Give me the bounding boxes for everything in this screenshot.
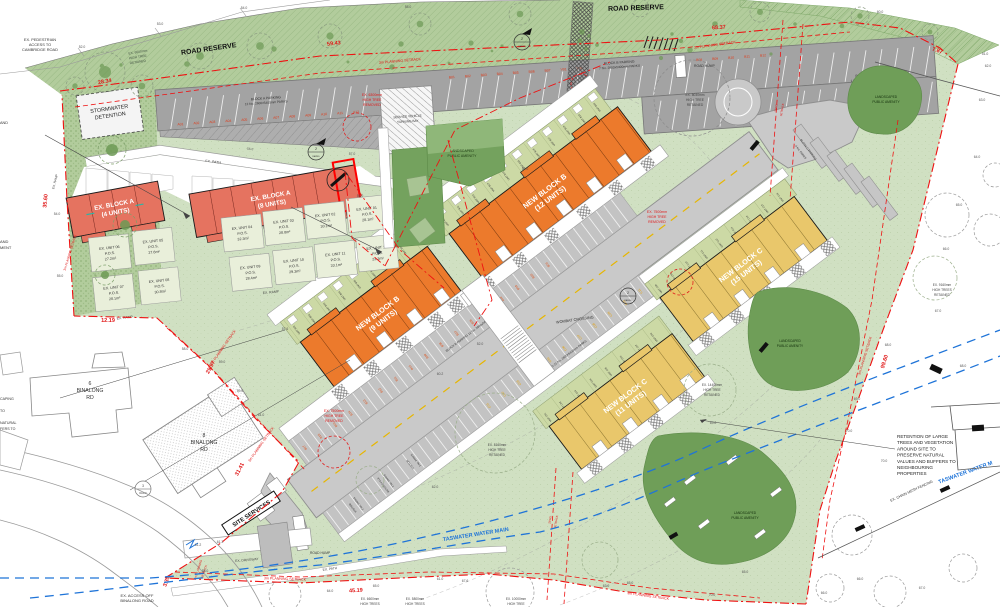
svg-text:EX. 7500mm: EX. 7500mm [324, 409, 344, 413]
svg-text:A10: A10 [321, 112, 327, 116]
svg-text:66.0: 66.0 [943, 247, 950, 251]
svg-text:PARKS: PARKS [518, 45, 526, 48]
svg-text:NATURAL: NATURAL [0, 421, 17, 425]
svg-text:EX. 5800mm: EX. 5800mm [406, 597, 425, 601]
svg-text:EX. 8160mm: EX. 8160mm [488, 443, 507, 447]
svg-text:B03: B03 [481, 73, 487, 77]
svg-text:HIGH TREE: HIGH TREE [488, 448, 505, 452]
svg-text:52.0: 52.0 [477, 342, 484, 346]
svg-text:A08: A08 [289, 114, 295, 118]
svg-text:NEIGHBOURING: NEIGHBOURING [897, 465, 933, 470]
svg-text:LANDSCAPED: LANDSCAPED [779, 339, 801, 343]
svg-text:PUBLIC AMENITY: PUBLIC AMENITY [731, 516, 759, 520]
svg-text:58.0: 58.0 [182, 347, 189, 351]
svg-text:67.6: 67.6 [462, 579, 469, 583]
svg-text:A05: A05 [241, 118, 247, 122]
svg-text:CAMBRIDGE ROAD: CAMBRIDGE ROAD [22, 47, 58, 52]
svg-text:V01: V01 [560, 67, 566, 71]
svg-text:56.0: 56.0 [247, 147, 254, 152]
svg-text:45.19: 45.19 [349, 588, 363, 595]
svg-text:HIGH TREE: HIGH TREE [703, 388, 720, 392]
svg-text:61.2: 61.2 [195, 543, 202, 547]
svg-text:69.0: 69.0 [710, 421, 717, 425]
svg-text:68.37: 68.37 [712, 25, 726, 32]
svg-text:BINALONG ROAD: BINALONG ROAD [120, 598, 153, 603]
svg-text:54.0: 54.0 [54, 212, 61, 216]
svg-text:54.0: 54.0 [241, 6, 248, 10]
svg-text:59.0: 59.0 [522, 167, 529, 171]
svg-text:RETAINED: RETAINED [704, 393, 721, 397]
svg-text:LANDSCAPED: LANDSCAPED [450, 149, 474, 153]
svg-text:12.19: 12.19 [101, 318, 115, 324]
svg-text:HIGH TREE: HIGH TREE [686, 98, 705, 102]
svg-text:2: 2 [521, 37, 523, 41]
svg-text:61.0: 61.0 [437, 577, 444, 581]
svg-text:PARKS: PARKS [624, 299, 632, 302]
svg-text:RETAINED: RETAINED [934, 293, 951, 297]
svg-text:35.60: 35.60 [42, 194, 49, 208]
svg-text:51.0: 51.0 [982, 52, 989, 56]
svg-text:2: 2 [627, 291, 629, 295]
svg-text:RETENTION OF LARGE: RETENTION OF LARGE [897, 434, 948, 439]
svg-text:REMOVED: REMOVED [363, 103, 381, 107]
svg-text:65.0: 65.0 [373, 584, 380, 588]
svg-text:70.0: 70.0 [709, 593, 716, 597]
svg-text:62.0: 62.0 [985, 64, 992, 68]
svg-text:60.2: 60.2 [437, 372, 444, 376]
svg-text:AND: AND [0, 239, 9, 244]
svg-text:PARKS: PARKS [312, 155, 320, 158]
svg-text:B05: B05 [513, 71, 519, 75]
svg-text:8: 8 [203, 433, 206, 439]
svg-text:HIGH TREES: HIGH TREES [932, 288, 951, 292]
svg-text:64.0: 64.0 [974, 155, 981, 159]
svg-text:A04: A04 [225, 119, 231, 123]
svg-text:53.0: 53.0 [157, 22, 164, 26]
svg-text:A09: A09 [305, 113, 311, 117]
svg-text:EX. 8030mm: EX. 8030mm [685, 93, 704, 97]
svg-text:LANDSCAPED: LANDSCAPED [875, 95, 898, 99]
svg-text:59.0: 59.0 [219, 360, 226, 364]
svg-text:RETAINED: RETAINED [489, 453, 506, 457]
svg-text:64.0: 64.0 [327, 589, 334, 593]
svg-text:EX. 10000mm: EX. 10000mm [506, 597, 527, 601]
svg-text:RETAINED: RETAINED [687, 103, 704, 107]
svg-text:55.0: 55.0 [405, 5, 412, 9]
svg-text:67.0: 67.0 [935, 309, 942, 313]
svg-text:3: 3 [142, 484, 144, 488]
svg-text:68.0: 68.0 [960, 364, 967, 368]
svg-text:65.0: 65.0 [742, 570, 749, 574]
svg-text:EX. 6600mm: EX. 6600mm [361, 597, 380, 601]
svg-text:EX. 6300mm: EX. 6300mm [362, 93, 382, 97]
svg-text:HIGH TREES: HIGH TREES [360, 602, 379, 606]
svg-text:HIGH TREE: HIGH TREE [363, 98, 383, 102]
svg-text:B06: B06 [528, 69, 534, 73]
svg-text:B11: B11 [744, 54, 750, 58]
svg-text:67.0: 67.0 [919, 586, 926, 590]
svg-text:70.0: 70.0 [881, 459, 888, 463]
svg-text:PUBLIC AMENITY: PUBLIC AMENITY [777, 344, 804, 348]
svg-text:HIGH TREES: HIGH TREES [405, 602, 424, 606]
svg-text:B04: B04 [497, 72, 503, 76]
svg-text:MENT: MENT [0, 245, 12, 250]
svg-text:AND: AND [0, 121, 8, 125]
svg-text:HIGH TREE: HIGH TREE [325, 414, 345, 418]
svg-text:61.3: 61.3 [217, 540, 224, 544]
svg-text:B01: B01 [449, 75, 455, 79]
svg-text:PROPERTIES: PROPERTIES [897, 471, 927, 476]
svg-text:ROAD HUMP: ROAD HUMP [310, 551, 331, 555]
svg-text:HIGH TREE: HIGH TREE [648, 215, 668, 219]
svg-text:A11: A11 [337, 111, 343, 115]
svg-text:70.0: 70.0 [846, 429, 853, 433]
svg-text:HIGH TREE: HIGH TREE [507, 602, 524, 606]
svg-text:TO: TO [0, 409, 5, 413]
svg-text:2: 2 [315, 147, 317, 151]
svg-text:B12: B12 [760, 53, 766, 57]
svg-text:65.0: 65.0 [956, 203, 963, 207]
svg-text:VALUES AND BUFFERS TO: VALUES AND BUFFERS TO [897, 459, 956, 464]
svg-text:65.0: 65.0 [627, 581, 634, 585]
svg-text:B07: B07 [544, 68, 550, 72]
svg-text:RD: RD [86, 395, 94, 401]
svg-text:62.0: 62.0 [432, 485, 439, 489]
svg-text:55.0: 55.0 [57, 274, 64, 278]
svg-text:69.0: 69.0 [854, 397, 861, 401]
svg-text:REMOVED: REMOVED [325, 419, 343, 423]
svg-text:68.0: 68.0 [885, 343, 892, 347]
svg-text:A07: A07 [273, 115, 279, 119]
svg-text:66.0: 66.0 [857, 577, 864, 581]
svg-text:60.0: 60.0 [877, 10, 884, 14]
svg-text:AROUND SITE TO: AROUND SITE TO [897, 446, 936, 451]
svg-text:A02: A02 [193, 121, 199, 125]
svg-text:6: 6 [89, 381, 92, 387]
svg-text:EX. 9160mm: EX. 9160mm [933, 283, 952, 287]
svg-text:TREES AND VEGETATION: TREES AND VEGETATION [897, 440, 953, 445]
svg-text:57.0: 57.0 [349, 152, 356, 156]
svg-text:58.0: 58.0 [357, 194, 364, 198]
svg-text:63.0: 63.0 [979, 98, 986, 102]
svg-text:52.0: 52.0 [79, 45, 86, 49]
svg-text:PRESERVE NATURAL: PRESERVE NATURAL [897, 453, 945, 458]
svg-text:FERS TO: FERS TO [0, 427, 16, 431]
svg-text:B10: B10 [728, 56, 734, 60]
svg-text:63.0: 63.0 [603, 584, 610, 588]
svg-text:B09: B09 [712, 57, 718, 61]
svg-text:59.5: 59.5 [237, 389, 244, 393]
svg-text:A06: A06 [257, 117, 263, 121]
svg-text:57.6: 57.6 [282, 327, 289, 331]
svg-text:REMOVED: REMOVED [648, 220, 666, 224]
svg-text:A01: A01 [177, 122, 183, 126]
svg-text:B08: B08 [696, 58, 702, 62]
svg-text:LANDSCAPED: LANDSCAPED [734, 511, 757, 515]
svg-text:EX. 14400mm: EX. 14400mm [702, 383, 723, 387]
svg-text:B02: B02 [465, 74, 471, 78]
svg-text:66.0: 66.0 [821, 591, 828, 595]
svg-text:EX. 7500mm: EX. 7500mm [647, 210, 667, 214]
svg-text:A03: A03 [209, 120, 215, 124]
svg-text:CAPING: CAPING [0, 397, 14, 401]
svg-text:PUBLIC AMENITY: PUBLIC AMENITY [872, 100, 900, 104]
svg-text:61.0: 61.0 [258, 413, 265, 417]
svg-text:58.0: 58.0 [202, 569, 209, 573]
